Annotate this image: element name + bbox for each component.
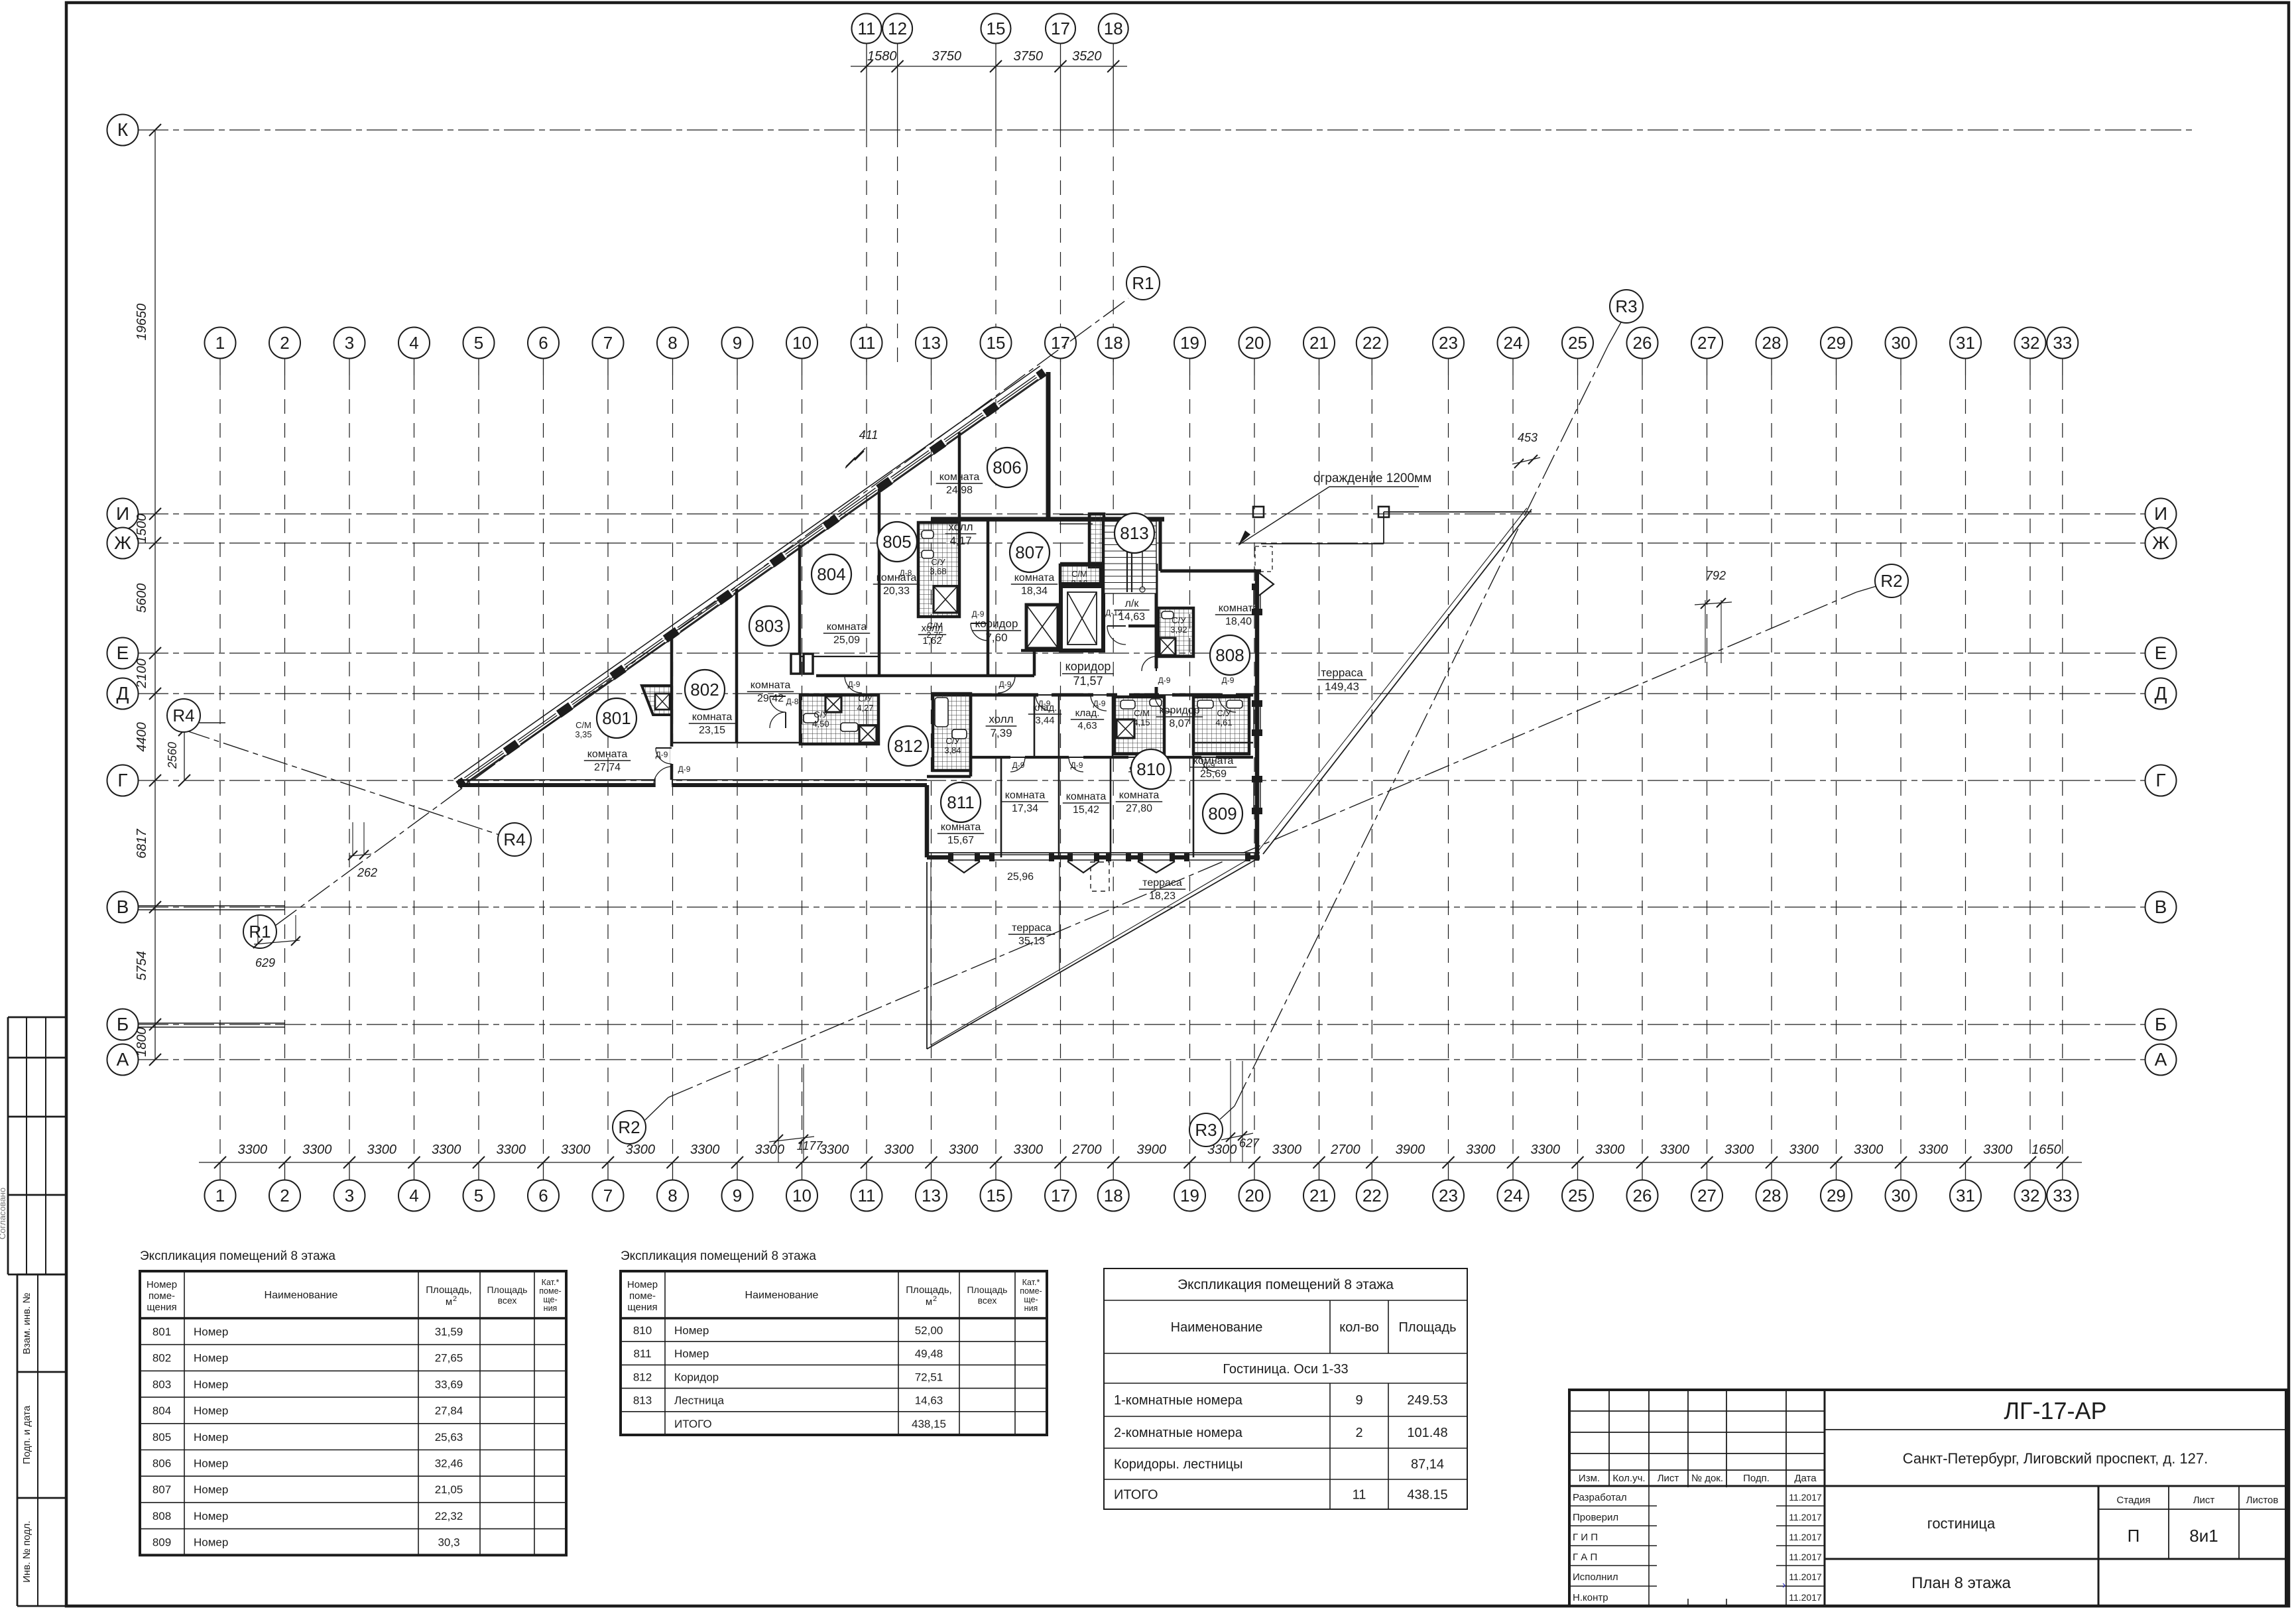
svg-text:3300: 3300	[1595, 1143, 1625, 1157]
svg-text:ИТОГО: ИТОГО	[674, 1418, 712, 1430]
svg-text:49,48: 49,48	[915, 1347, 943, 1360]
svg-text:802: 802	[152, 1352, 171, 1365]
svg-text:комната: комната	[587, 749, 628, 760]
svg-text:Кат.*: Кат.*	[542, 1278, 560, 1287]
svg-text:Номер: Номер	[194, 1378, 228, 1391]
svg-text:18,40: 18,40	[1225, 616, 1252, 627]
svg-text:18: 18	[1104, 1186, 1123, 1206]
svg-text:13: 13	[922, 333, 941, 353]
svg-text:И: И	[2154, 503, 2167, 524]
svg-text:2: 2	[933, 1295, 937, 1303]
svg-text:26: 26	[1633, 1186, 1652, 1206]
svg-text:Согласовано: Согласовано	[0, 1188, 7, 1239]
svg-text:792: 792	[1706, 569, 1726, 582]
svg-text:Д-9: Д-9	[1158, 676, 1171, 685]
svg-text:3300: 3300	[432, 1143, 461, 1157]
svg-text:3750: 3750	[932, 49, 962, 64]
svg-text:7,60: 7,60	[985, 631, 1007, 644]
svg-text:ще-: ще-	[1024, 1295, 1038, 1304]
svg-text:11.2017: 11.2017	[1789, 1592, 1822, 1603]
svg-text:7,39: 7,39	[990, 727, 1012, 739]
svg-text:9: 9	[733, 1186, 742, 1206]
svg-text:С/У: С/У	[1217, 708, 1231, 718]
svg-text:В: В	[2155, 897, 2167, 917]
svg-text:2: 2	[280, 333, 289, 353]
svg-text:Дата: Дата	[1794, 1473, 1817, 1484]
svg-text:803: 803	[152, 1378, 171, 1391]
svg-text:809: 809	[152, 1536, 171, 1549]
svg-text:13: 13	[922, 1186, 941, 1206]
svg-text:9: 9	[1355, 1393, 1362, 1408]
svg-text:11.2017: 11.2017	[1789, 1512, 1822, 1522]
svg-text:Площадь: Площадь	[967, 1284, 1008, 1295]
svg-text:Д-9: Д-9	[1012, 761, 1025, 770]
svg-text:коридор: коридор	[1159, 705, 1199, 716]
svg-text:21,05: 21,05	[435, 1483, 463, 1496]
svg-text:3300: 3300	[1789, 1143, 1819, 1157]
svg-text:1500: 1500	[135, 514, 149, 544]
svg-text:4: 4	[409, 333, 418, 353]
svg-text:3300: 3300	[497, 1143, 526, 1157]
svg-text:804: 804	[152, 1404, 171, 1417]
svg-text:453: 453	[1518, 431, 1538, 444]
svg-text:22: 22	[1362, 1186, 1382, 1206]
svg-text:холл: холл	[948, 521, 973, 533]
svg-text:810: 810	[1136, 759, 1165, 779]
svg-text:1800: 1800	[135, 1027, 149, 1057]
svg-text:коридор: коридор	[1065, 660, 1111, 673]
svg-text:3,44: 3,44	[1035, 715, 1054, 726]
svg-text:Д-8: Д-8	[786, 697, 799, 706]
svg-text:R1: R1	[1132, 273, 1154, 293]
svg-text:5600: 5600	[135, 584, 149, 613]
svg-text:17: 17	[1051, 333, 1070, 353]
svg-text:Исполнил: Исполнил	[1573, 1572, 1618, 1583]
svg-text:23: 23	[1439, 333, 1458, 353]
svg-text:24: 24	[1504, 1186, 1523, 1206]
svg-text:Изм.: Изм.	[1579, 1473, 1600, 1484]
svg-text:32: 32	[2021, 1186, 2040, 1206]
svg-text:Лист: Лист	[1658, 1473, 1679, 1484]
svg-text:всех: всех	[498, 1295, 517, 1306]
svg-text:Номер: Номер	[674, 1324, 709, 1337]
svg-text:20: 20	[1245, 333, 1264, 353]
svg-text:25,69: 25,69	[1200, 769, 1227, 780]
svg-text:3300: 3300	[1854, 1143, 1884, 1157]
svg-text:629: 629	[255, 956, 275, 969]
svg-text:Листов: Листов	[2246, 1495, 2279, 1506]
svg-text:комната: комната	[827, 621, 867, 633]
svg-text:Номер: Номер	[194, 1431, 228, 1444]
svg-text:807: 807	[1015, 542, 1044, 562]
svg-text:19: 19	[1180, 1186, 1199, 1206]
svg-text:Д-9: Д-9	[999, 680, 1012, 689]
svg-text:27,65: 27,65	[435, 1352, 463, 1365]
svg-text:комната: комната	[876, 572, 917, 584]
svg-text:Площадь: Площадь	[487, 1284, 528, 1295]
svg-text:Д: Д	[2155, 683, 2167, 704]
svg-text:С/М: С/М	[1134, 708, 1150, 718]
svg-text:ЛГ-17-АР: ЛГ-17-АР	[2004, 1397, 2106, 1424]
svg-text:33: 33	[2053, 1186, 2072, 1206]
svg-text:клад.: клад.	[1075, 708, 1100, 719]
svg-text:8: 8	[668, 1186, 677, 1206]
svg-text:поме-: поме-	[539, 1286, 561, 1296]
svg-text:11.2017: 11.2017	[1789, 1492, 1822, 1503]
svg-text:К: К	[117, 119, 129, 140]
svg-text:20: 20	[1245, 1186, 1264, 1206]
svg-text:802: 802	[690, 680, 719, 700]
svg-text:2700: 2700	[1330, 1143, 1360, 1157]
svg-text:30: 30	[1892, 1186, 1911, 1206]
svg-text:3300: 3300	[561, 1143, 591, 1157]
svg-text:12: 12	[888, 19, 907, 38]
svg-text:Площадь: Площадь	[1398, 1320, 1456, 1335]
svg-text:5754: 5754	[135, 951, 149, 981]
svg-text:2700: 2700	[1071, 1143, 1102, 1157]
svg-text:18,34: 18,34	[1021, 586, 1048, 597]
svg-text:3300: 3300	[626, 1143, 656, 1157]
svg-text:810: 810	[633, 1324, 652, 1337]
svg-text:3,35: 3,35	[575, 729, 591, 739]
svg-text:24: 24	[1504, 333, 1523, 353]
svg-text:25,96: 25,96	[1007, 871, 1034, 883]
svg-text:Площадь,: Площадь,	[426, 1284, 471, 1296]
svg-text:4: 4	[409, 1186, 418, 1206]
svg-text:27: 27	[1697, 1186, 1717, 1206]
svg-text:21: 21	[1309, 1186, 1329, 1206]
svg-text:Н.контр: Н.контр	[1573, 1592, 1608, 1603]
svg-text:22,32: 22,32	[435, 1510, 463, 1522]
svg-text:Б: Б	[2155, 1014, 2167, 1034]
svg-text:С/М: С/М	[1071, 569, 1087, 579]
svg-text:27,74: 27,74	[594, 762, 621, 773]
svg-text:52,00: 52,00	[915, 1324, 943, 1337]
svg-text:806: 806	[152, 1457, 171, 1470]
svg-text:Коридор: Коридор	[674, 1371, 719, 1383]
svg-text:812: 812	[894, 736, 922, 756]
svg-text:поме-: поме-	[1020, 1286, 1042, 1296]
svg-text:804: 804	[817, 564, 845, 584]
svg-text:3: 3	[345, 1186, 354, 1206]
svg-text:2: 2	[280, 1186, 289, 1206]
svg-text:гостиница: гостиница	[1927, 1515, 1996, 1532]
svg-text:Д: Д	[117, 683, 129, 704]
svg-text:808: 808	[1215, 645, 1244, 665]
svg-text:Наименование: Наименование	[265, 1290, 338, 1301]
svg-text:щения: щения	[147, 1302, 176, 1313]
svg-text:4,15: 4,15	[1133, 717, 1150, 727]
svg-text:С/У: С/У	[1172, 615, 1186, 625]
svg-text:28: 28	[1762, 333, 1782, 353]
svg-text:R4: R4	[503, 830, 525, 849]
svg-text:3300: 3300	[755, 1143, 785, 1157]
svg-text:Стадия: Стадия	[2116, 1495, 2150, 1506]
svg-text:17: 17	[1051, 1186, 1070, 1206]
svg-text:комната: комната	[939, 471, 980, 483]
svg-text:18,23: 18,23	[1149, 891, 1176, 902]
svg-text:Номер: Номер	[194, 1404, 228, 1417]
svg-text:101.48: 101.48	[1407, 1426, 1447, 1440]
svg-text:Подп. и дата: Подп. и дата	[21, 1405, 32, 1464]
svg-text:14,63: 14,63	[915, 1394, 943, 1407]
svg-text:Номер: Номер	[627, 1279, 658, 1290]
svg-text:R2: R2	[618, 1117, 640, 1137]
svg-text:1650: 1650	[2031, 1143, 2061, 1157]
svg-text:коридор: коридор	[975, 617, 1018, 630]
svg-text:А: А	[117, 1049, 129, 1070]
svg-text:R4: R4	[172, 706, 194, 725]
svg-text:18: 18	[1104, 19, 1123, 38]
svg-text:Разработал: Разработал	[1573, 1492, 1627, 1503]
svg-text:7: 7	[603, 1186, 613, 1206]
svg-text:15,42: 15,42	[1073, 804, 1099, 816]
svg-text:30: 30	[1892, 333, 1911, 353]
svg-text:1: 1	[215, 1186, 225, 1206]
svg-text:23: 23	[1439, 1186, 1458, 1206]
svg-text:›: ›	[1782, 1579, 1785, 1591]
svg-text:С/У: С/У	[858, 694, 873, 704]
svg-text:терраса: терраса	[1142, 877, 1182, 889]
svg-text:8и1: 8и1	[2189, 1526, 2218, 1546]
svg-text:2-комнатные номера: 2-комнатные номера	[1114, 1426, 1243, 1440]
svg-text:Лист: Лист	[2193, 1495, 2215, 1506]
svg-text:801: 801	[152, 1326, 171, 1338]
svg-text:438.15: 438.15	[1407, 1488, 1447, 1503]
svg-text:28: 28	[1762, 1186, 1782, 1206]
svg-text:Лестница: Лестница	[674, 1394, 725, 1407]
svg-text:№ док.: № док.	[1691, 1473, 1723, 1484]
svg-text:комната: комната	[1219, 603, 1259, 614]
svg-text:холл: холл	[989, 713, 1013, 725]
svg-text:Номер: Номер	[194, 1352, 228, 1365]
svg-text:3300: 3300	[949, 1143, 979, 1157]
svg-text:3900: 3900	[1137, 1143, 1167, 1157]
svg-text:R3: R3	[1615, 296, 1637, 316]
svg-text:2,16: 2,16	[1071, 578, 1087, 588]
svg-text:22: 22	[1362, 333, 1382, 353]
svg-text:3300: 3300	[1919, 1143, 1949, 1157]
svg-text:813: 813	[633, 1394, 652, 1407]
svg-text:Экспликация помещений 8 эта: Экспликация помещений 8 этажа	[621, 1249, 816, 1263]
svg-text:Наименование: Наименование	[1171, 1320, 1263, 1335]
svg-text:Г: Г	[2155, 770, 2165, 790]
svg-text:3300: 3300	[1014, 1143, 1044, 1157]
svg-text:щения: щения	[627, 1302, 657, 1313]
svg-text:Коридоры. лестницы: Коридоры. лестницы	[1114, 1457, 1242, 1472]
svg-text:Номер: Номер	[194, 1483, 228, 1496]
svg-text:15,67: 15,67	[947, 835, 974, 846]
svg-text:32,46: 32,46	[435, 1457, 463, 1470]
svg-text:32: 32	[2021, 333, 2040, 353]
svg-text:411: 411	[859, 428, 878, 442]
svg-text:Гостиница. Оси 1-33: Гостиница. Оси 1-33	[1223, 1362, 1348, 1377]
svg-text:Номер: Номер	[194, 1326, 228, 1338]
svg-text:А: А	[2155, 1049, 2167, 1070]
svg-text:3,84: 3,84	[944, 745, 961, 755]
svg-text:25,63: 25,63	[435, 1431, 463, 1444]
svg-text:4,27: 4,27	[857, 703, 873, 713]
svg-text:Проверил: Проверил	[1573, 1512, 1618, 1523]
svg-text:терраса: терраса	[1321, 666, 1363, 679]
svg-text:комната: комната	[1005, 790, 1046, 801]
svg-text:R2: R2	[1880, 571, 1902, 591]
svg-text:87,14: 87,14	[1411, 1457, 1444, 1472]
svg-text:3520: 3520	[1072, 49, 1102, 64]
svg-text:29: 29	[1827, 333, 1846, 353]
svg-text:Г И П: Г И П	[1573, 1532, 1598, 1543]
svg-text:2,75: 2,75	[926, 630, 943, 640]
svg-text:П: П	[2128, 1526, 2140, 1546]
svg-text:3750: 3750	[1014, 49, 1044, 64]
svg-text:Кол.уч.: Кол.уч.	[1612, 1473, 1645, 1484]
svg-text:31: 31	[1956, 1186, 1975, 1206]
svg-text:ИТОГО: ИТОГО	[1114, 1488, 1158, 1503]
svg-text:С/М: С/М	[575, 720, 591, 730]
svg-text:811: 811	[633, 1347, 651, 1360]
svg-text:3300: 3300	[1466, 1143, 1496, 1157]
svg-text:Инв. № подл.: Инв. № подл.	[21, 1520, 32, 1582]
svg-text:35,13: 35,13	[1018, 936, 1045, 947]
svg-text:7: 7	[603, 333, 613, 353]
svg-text:кол-во: кол-во	[1339, 1320, 1379, 1335]
svg-text:3,68: 3,68	[930, 566, 946, 576]
svg-text:3300: 3300	[1272, 1143, 1302, 1157]
svg-text:3300: 3300	[819, 1143, 849, 1157]
svg-text:Номер: Номер	[194, 1536, 228, 1549]
svg-text:3: 3	[345, 333, 354, 353]
svg-text:808: 808	[152, 1510, 171, 1522]
svg-text:План 8 этажа: План 8 этажа	[1911, 1574, 2011, 1592]
svg-text:31,59: 31,59	[435, 1326, 463, 1338]
svg-text:ограждение 1200мм: ограждение 1200мм	[1313, 471, 1431, 485]
svg-text:249.53: 249.53	[1407, 1393, 1447, 1408]
svg-text:3300: 3300	[367, 1143, 397, 1157]
svg-text:807: 807	[152, 1483, 171, 1496]
svg-text:19: 19	[1180, 333, 1199, 353]
svg-text:33,69: 33,69	[435, 1378, 463, 1391]
svg-text:Д-9: Д-9	[848, 680, 861, 689]
svg-text:Д-9: Д-9	[656, 750, 668, 759]
svg-text:всех: всех	[978, 1295, 997, 1306]
svg-text:Е: Е	[2155, 643, 2167, 663]
svg-text:R3: R3	[1195, 1120, 1217, 1140]
svg-text:комната: комната	[941, 822, 981, 833]
svg-text:Г А П: Г А П	[1573, 1552, 1597, 1563]
svg-text:11.2017: 11.2017	[1789, 1572, 1822, 1582]
svg-text:11.2017: 11.2017	[1789, 1552, 1822, 1562]
svg-text:805: 805	[152, 1431, 171, 1444]
svg-text:14,63: 14,63	[1118, 611, 1145, 623]
svg-text:18: 18	[1104, 333, 1123, 353]
svg-text:813: 813	[1120, 523, 1148, 543]
svg-text:1: 1	[215, 333, 225, 353]
svg-text:6: 6	[538, 1186, 548, 1206]
svg-text:812: 812	[633, 1371, 652, 1383]
svg-text:9: 9	[733, 333, 742, 353]
svg-text:15: 15	[987, 19, 1006, 38]
svg-text:Наименование: Наименование	[745, 1290, 819, 1301]
svg-text:Д-9: Д-9	[1071, 761, 1083, 770]
svg-text:Номер: Номер	[194, 1457, 228, 1470]
svg-text:ния: ния	[1024, 1304, 1038, 1313]
svg-text:10: 10	[792, 1186, 812, 1206]
svg-text:поме-: поме-	[629, 1290, 656, 1302]
svg-text:3300: 3300	[238, 1143, 268, 1157]
svg-text:Е: Е	[117, 643, 129, 663]
svg-text:поме-: поме-	[149, 1290, 175, 1302]
svg-text:3900: 3900	[1396, 1143, 1425, 1157]
svg-text:4,63: 4,63	[1077, 720, 1097, 731]
svg-text:Г: Г	[117, 770, 127, 790]
svg-text:17: 17	[1051, 19, 1070, 38]
svg-text:Д-9: Д-9	[1222, 676, 1235, 685]
svg-text:25,09: 25,09	[833, 635, 860, 646]
svg-text:И: И	[116, 503, 129, 524]
svg-text:3300: 3300	[1660, 1143, 1690, 1157]
svg-text:25: 25	[1568, 1186, 1587, 1206]
svg-text:2560: 2560	[166, 742, 179, 769]
svg-text:комната: комната	[1066, 791, 1107, 802]
svg-text:Номер: Номер	[194, 1510, 228, 1522]
svg-text:10: 10	[792, 333, 812, 353]
svg-text:С/М: С/М	[927, 621, 943, 631]
svg-text:ще-: ще-	[543, 1295, 557, 1304]
svg-text:809: 809	[1208, 804, 1237, 824]
svg-text:3300: 3300	[1531, 1143, 1561, 1157]
svg-text:29,42: 29,42	[757, 693, 784, 704]
svg-text:Подп.: Подп.	[1743, 1473, 1770, 1484]
svg-text:С/У: С/У	[931, 557, 945, 567]
svg-text:23,15: 23,15	[699, 725, 725, 736]
svg-text:149,43: 149,43	[1325, 680, 1359, 693]
svg-text:15: 15	[987, 333, 1006, 353]
svg-text:1580: 1580	[867, 49, 897, 64]
svg-text:8,07: 8,07	[1169, 718, 1189, 729]
svg-text:20,33: 20,33	[883, 586, 910, 597]
svg-text:3300: 3300	[690, 1143, 720, 1157]
svg-text:811: 811	[947, 792, 974, 812]
svg-text:ния: ния	[544, 1304, 558, 1313]
svg-text:м: м	[926, 1296, 932, 1308]
svg-text:Кат.*: Кат.*	[1022, 1278, 1040, 1287]
svg-text:Б: Б	[117, 1014, 129, 1034]
svg-text:комната: комната	[692, 711, 733, 723]
svg-text:72,51: 72,51	[915, 1371, 943, 1383]
svg-text:5: 5	[474, 333, 483, 353]
svg-text:262: 262	[357, 866, 377, 879]
svg-text:6817: 6817	[135, 828, 149, 858]
svg-text:4400: 4400	[135, 722, 149, 752]
svg-text:Экспликация помещений 8 эта: Экспликация помещений 8 этажа	[140, 1249, 335, 1263]
svg-text:комната: комната	[1193, 755, 1234, 767]
svg-text:17,34: 17,34	[1012, 803, 1038, 814]
svg-text:3,92: 3,92	[1170, 625, 1187, 635]
svg-text:терраса: терраса	[1012, 922, 1052, 934]
svg-text:803: 803	[755, 616, 783, 636]
svg-text:1-комнатные номера: 1-комнатные номера	[1114, 1393, 1243, 1408]
svg-text:27,80: 27,80	[1126, 803, 1152, 814]
svg-text:11: 11	[1353, 1488, 1366, 1503]
svg-text:19650: 19650	[135, 304, 149, 341]
svg-text:30,3: 30,3	[438, 1536, 459, 1549]
svg-text:4,17: 4,17	[949, 534, 971, 547]
svg-text:Номер: Номер	[147, 1279, 177, 1290]
svg-text:805: 805	[882, 532, 911, 552]
svg-text:2: 2	[453, 1295, 457, 1303]
svg-text:25: 25	[1568, 333, 1587, 353]
svg-text:27,84: 27,84	[435, 1404, 463, 1417]
